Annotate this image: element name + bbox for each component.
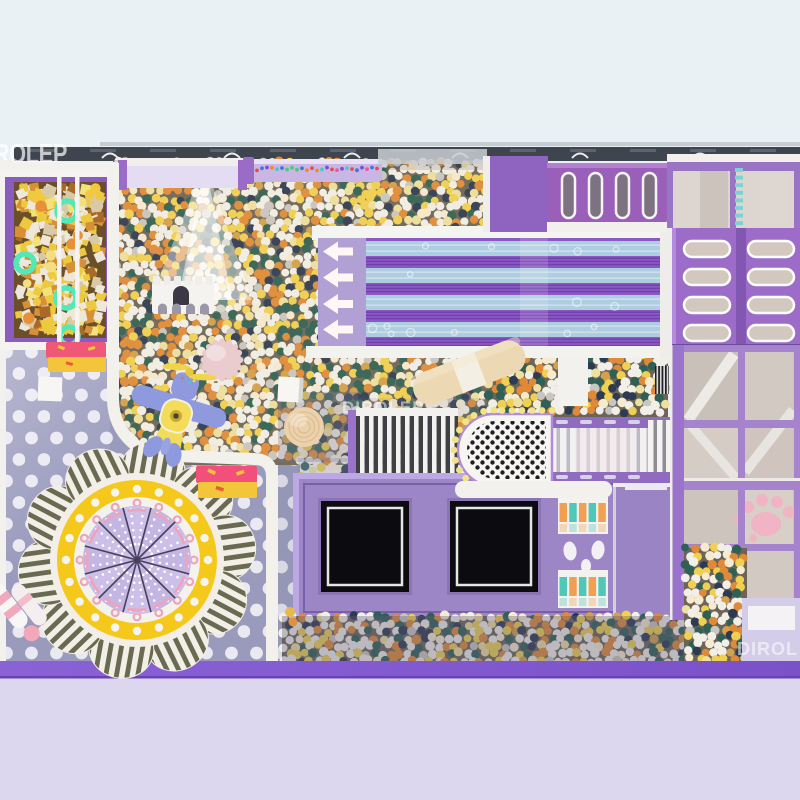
svg-text:DIROL: DIROL [737,639,798,659]
